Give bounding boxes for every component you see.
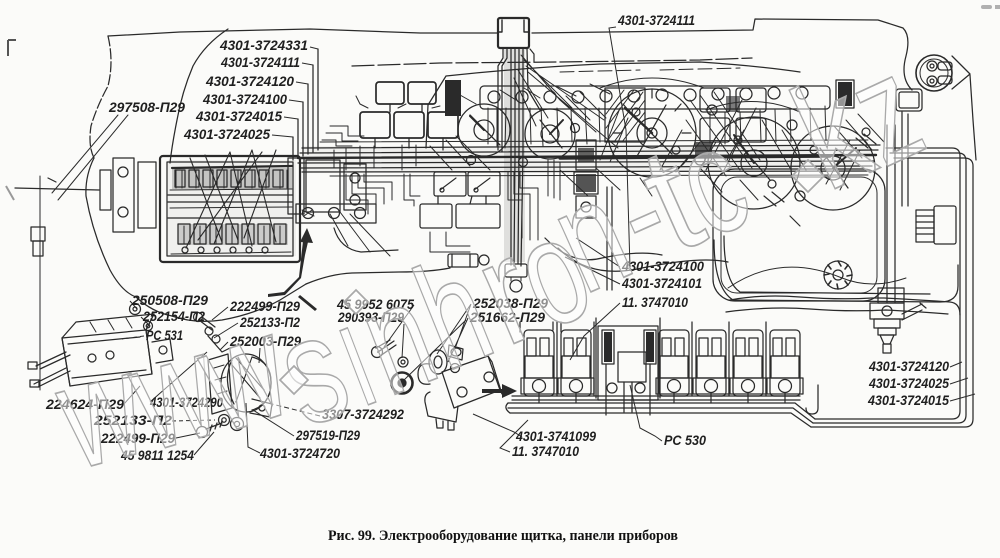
svg-text:РС 530: РС 530 [664, 432, 706, 448]
svg-text:4301-3724120: 4301-3724120 [868, 358, 949, 374]
svg-text:4301-3724331: 4301-3724331 [219, 37, 308, 53]
svg-text:4301-3741099: 4301-3741099 [515, 428, 596, 444]
svg-text:4301-3724015: 4301-3724015 [867, 392, 949, 408]
svg-text:4301-3724015: 4301-3724015 [195, 108, 282, 124]
svg-text:4301-3724025: 4301-3724025 [183, 126, 270, 142]
svg-text:4301-3724111: 4301-3724111 [617, 12, 695, 28]
svg-text:Рис. 99. Электрооборудование: Рис. 99. Электрооборудование щитка, пане… [328, 528, 678, 544]
svg-text:297508-П29: 297508-П29 [108, 99, 185, 115]
svg-text:4301-3724025: 4301-3724025 [868, 375, 949, 391]
svg-text:4301-3724111: 4301-3724111 [220, 54, 300, 70]
svg-text:4301-3724100: 4301-3724100 [202, 91, 287, 107]
svg-text:4301-3724120: 4301-3724120 [205, 73, 294, 89]
svg-text:11. 3747010: 11. 3747010 [512, 443, 579, 459]
